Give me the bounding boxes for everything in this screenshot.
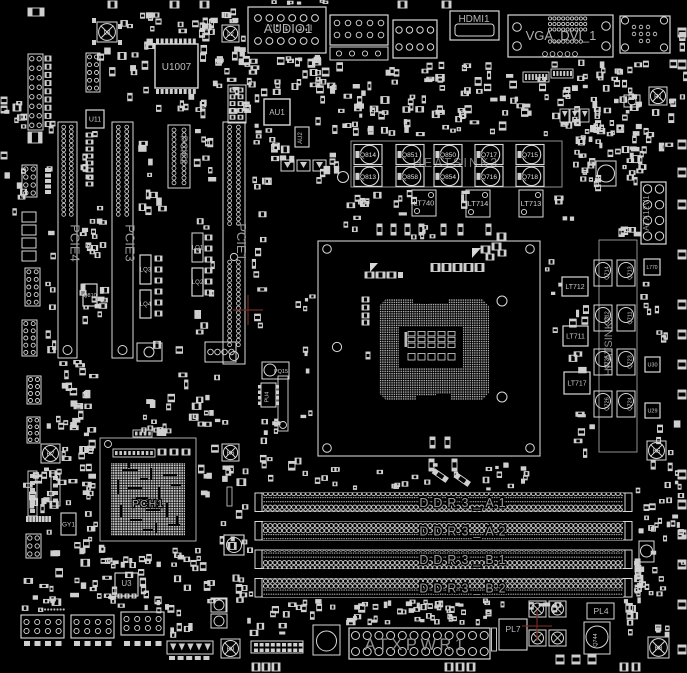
svg-text:H5: H5 [653,449,661,455]
svg-text:Q813: Q813 [360,174,376,181]
svg-text:LQ1: LQ1 [192,246,204,252]
svg-text:AU2: AU2 [298,132,304,144]
svg-text:Q714: Q714 [605,266,611,279]
svg-text:DDR3_B2: DDR3_B2 [419,582,510,596]
svg-text:ATX12V1: ATX12V1 [641,195,651,231]
svg-text:DDR3_A2: DDR3_A2 [419,525,510,539]
svg-text:PCIE2: PCIE2 [178,136,189,165]
svg-text:U30: U30 [647,362,657,368]
svg-text:U11: U11 [89,116,101,123]
svg-text:DDR3_B1: DDR3_B1 [419,553,510,567]
svg-text:PQ15: PQ15 [274,369,288,375]
svg-text:H6: H6 [227,451,235,457]
svg-text:LQ2: LQ2 [192,280,204,286]
svg-text:Q851: Q851 [402,152,418,159]
svg-text:L3: L3 [104,31,111,37]
svg-text:H9: H9 [227,647,235,653]
svg-text:Q854: Q854 [440,174,456,181]
svg-text:PL4: PL4 [593,606,608,616]
svg-text:Q726: Q726 [605,397,611,410]
svg-text:LT717: LT717 [567,380,586,387]
svg-text:AUDIO1: AUDIO1 [264,21,312,36]
svg-text:U29: U29 [647,408,657,414]
svg-text:Q718: Q718 [522,174,538,181]
svg-text:PCIE1: PCIE1 [234,223,249,261]
svg-text:Q713: Q713 [628,266,634,279]
svg-text:HDMI1: HDMI1 [458,14,490,25]
svg-text:U1007: U1007 [162,62,192,73]
svg-text:DDR3_A1: DDR3_A1 [419,496,510,510]
svg-text:Q744: Q744 [593,633,599,646]
svg-text:LT713: LT713 [521,199,542,208]
svg-text:Q814: Q814 [360,152,376,159]
svg-text:PCIE4: PCIE4 [68,224,83,262]
svg-text:Q858: Q858 [402,174,418,181]
svg-text:Q717: Q717 [481,152,497,159]
svg-text:AU1: AU1 [269,108,285,117]
svg-text:Q712: Q712 [605,311,611,324]
svg-text:Q724: Q724 [628,397,634,410]
svg-text:PCIE3: PCIE3 [123,224,138,262]
svg-text:LT712: LT712 [565,284,584,291]
svg-text:Q725: Q725 [605,355,611,368]
svg-text:ATXPWR1: ATXPWR1 [364,636,467,654]
svg-text:VGA_DVI_1: VGA_DVI_1 [526,28,597,43]
svg-text:PCH1: PCH1 [132,498,164,510]
svg-text:LQ4: LQ4 [140,302,152,308]
svg-text:H7: H7 [47,452,55,458]
svg-text:Q723: Q723 [628,355,634,368]
svg-text:H8: H8 [655,646,663,652]
svg-text:PU4: PU4 [265,392,271,403]
svg-text:L770: L770 [646,265,657,271]
svg-text:LT711: LT711 [566,333,585,340]
svg-text:LQ3: LQ3 [140,268,152,274]
svg-text:Q711: Q711 [628,311,634,324]
svg-text:Q850: Q850 [440,152,456,159]
svg-text:Q715: Q715 [522,152,538,159]
svg-text:U3: U3 [121,579,132,588]
svg-text:LT714: LT714 [468,199,489,208]
svg-text:L2: L2 [227,32,234,38]
svg-text:GY1: GY1 [62,521,75,528]
svg-text:PL7: PL7 [505,624,520,634]
svg-text:Q716: Q716 [481,174,497,181]
svg-text:H1: H1 [654,95,662,101]
